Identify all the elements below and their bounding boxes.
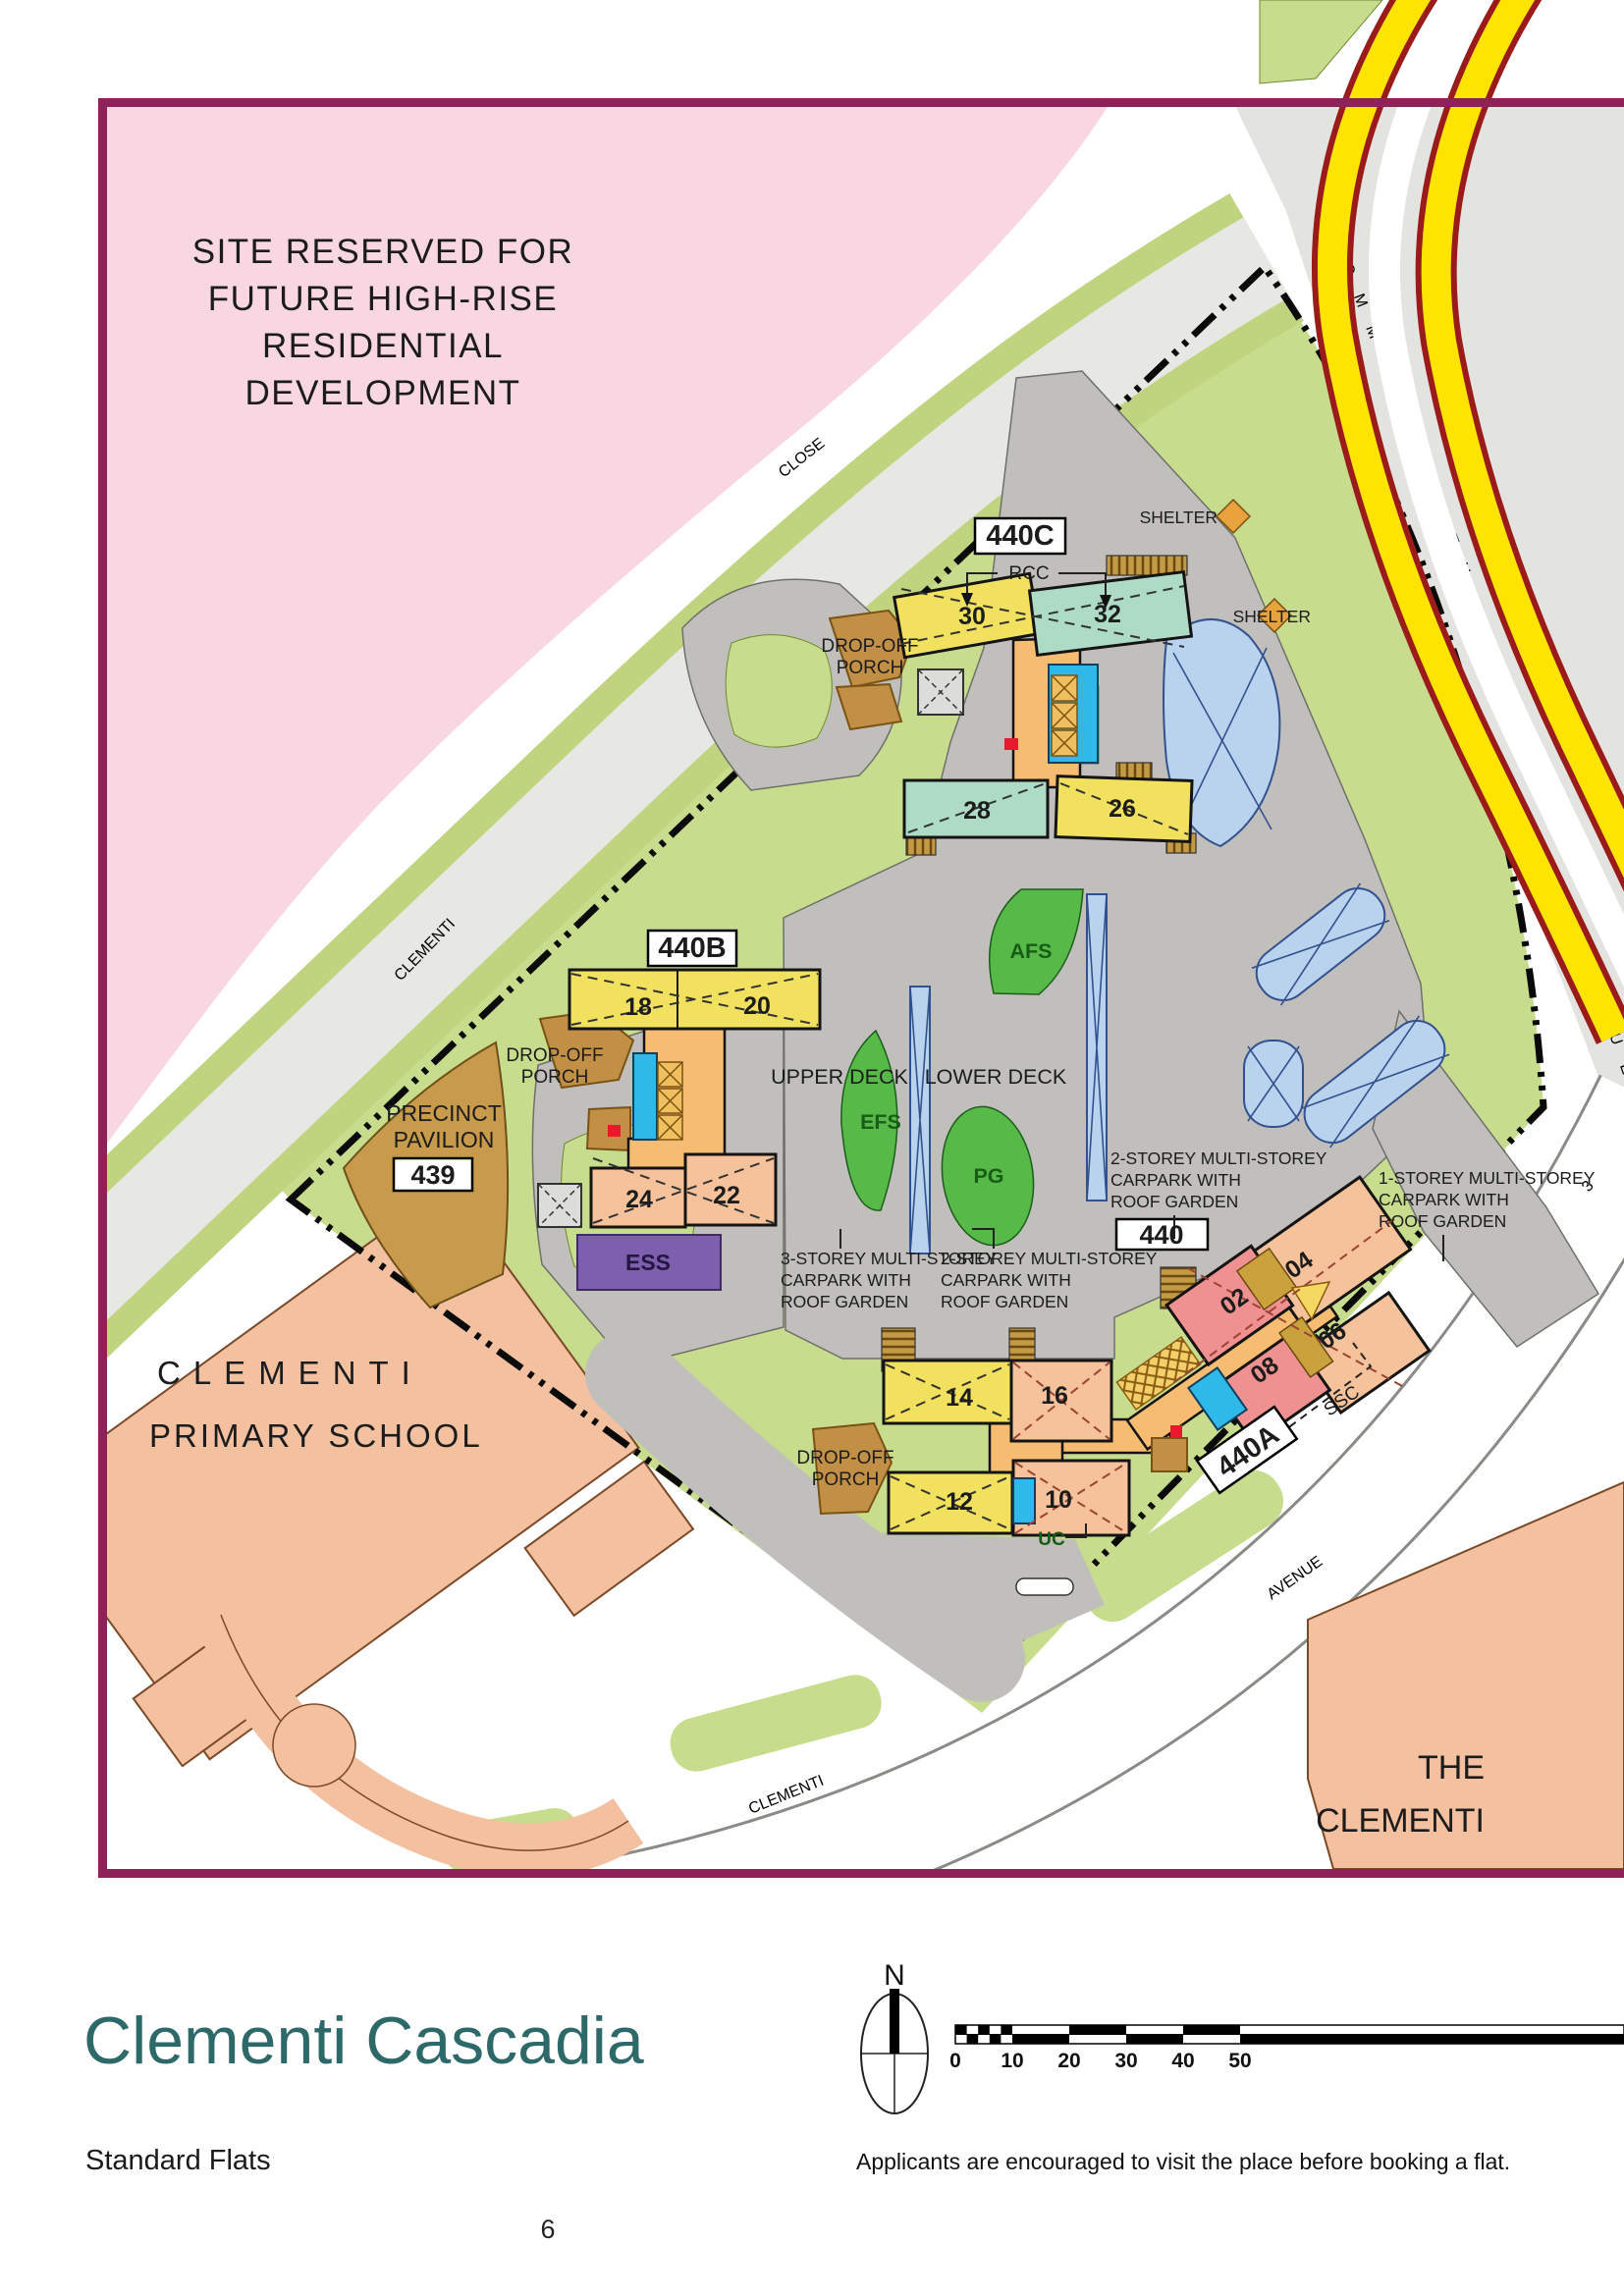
- pickup-oval: [1016, 1578, 1073, 1595]
- reserved-line3: RESIDENTIAL: [262, 327, 504, 365]
- cp2a-line1: 2-STOREY MULTI-STOREY: [941, 1249, 1158, 1268]
- page-number: 6: [540, 2215, 555, 2244]
- site-plan-map: SITE RESERVED FOR FUTURE HIGH-RISE RESID…: [0, 0, 1624, 2296]
- block-18-label: 18: [624, 993, 652, 1021]
- vent-shaft: [918, 669, 963, 715]
- lift-shafts: [658, 1062, 682, 1140]
- north-label: N: [884, 1959, 905, 1992]
- cp1-line3: ROOF GARDEN: [1379, 1211, 1506, 1231]
- red-marker: [608, 1125, 621, 1137]
- page-subtitle: Standard Flats: [85, 2145, 271, 2176]
- reserved-line2: FUTURE HIGH-RISE: [208, 280, 559, 318]
- cp3-line3: ROOF GARDEN: [781, 1292, 908, 1311]
- dropoff3-line1: DROP-OFF: [796, 1448, 893, 1468]
- legend-area: Clementi Cascadia Standard Flats Applica…: [83, 1959, 1624, 2244]
- cp2b-line1: 2-STOREY MULTI-STOREY: [1110, 1148, 1327, 1168]
- label-shelter1: SHELTER: [1140, 507, 1218, 527]
- dropoff1-line2: PORCH: [837, 658, 904, 678]
- scale-tick-20: 20: [1057, 2050, 1080, 2072]
- label-439: 439: [410, 1160, 455, 1190]
- north-needle: [890, 1989, 899, 2054]
- porch-440a-east: [1152, 1438, 1187, 1471]
- dropoff2-line1: DROP-OFF: [506, 1045, 603, 1066]
- reserved-line4: DEVELOPMENT: [245, 374, 521, 412]
- red-marker: [1170, 1425, 1182, 1437]
- school-line2: PRIMARY SCHOOL: [149, 1417, 483, 1454]
- scale-tick-40: 40: [1171, 2050, 1194, 2072]
- label-ess: ESS: [625, 1250, 671, 1275]
- neighbor-line2: CLEMENTI: [1316, 1802, 1485, 1840]
- block-12-label: 12: [946, 1488, 973, 1516]
- block-10-label: 10: [1045, 1486, 1072, 1514]
- block-26-label: 26: [1109, 795, 1136, 823]
- vent-shaft: [538, 1184, 581, 1227]
- lift-lobby: [1013, 1478, 1035, 1523]
- dropoff1-line1: DROP-OFF: [821, 636, 918, 657]
- label-afs: AFS: [1010, 939, 1053, 963]
- cp2b-line3: ROOF GARDEN: [1110, 1192, 1238, 1211]
- cp2a-line2: CARPARK WITH: [941, 1270, 1071, 1290]
- verge-patch: [665, 1669, 888, 1777]
- scale-tick-30: 30: [1114, 2050, 1137, 2072]
- scale-tick-0: 0: [949, 2050, 961, 2072]
- block-16-label: 16: [1041, 1382, 1068, 1410]
- stair: [906, 837, 936, 855]
- block-32-label: 32: [1094, 601, 1121, 628]
- page-title: Clementi Cascadia: [83, 2003, 644, 2078]
- block-28-label: 28: [963, 797, 991, 825]
- label-lower-deck: LOWER DECK: [925, 1065, 1067, 1089]
- school-line1: CLEMENTI: [157, 1355, 423, 1391]
- block-14-label: 14: [946, 1384, 973, 1412]
- green-island: [726, 635, 832, 747]
- pavilion-line1: PRECINCT: [386, 1100, 502, 1126]
- label-440b: 440B: [658, 933, 726, 964]
- red-marker: [1004, 738, 1018, 750]
- label-efs: EFS: [860, 1110, 901, 1134]
- label-rcc: RCC: [1008, 563, 1049, 584]
- brochure-page: SITE RESERVED FOR FUTURE HIGH-RISE RESID…: [0, 0, 1624, 2296]
- block-24-label: 24: [625, 1186, 653, 1213]
- cp1-line1: 1-STOREY MULTI-STOREY: [1379, 1168, 1596, 1188]
- block-20-label: 20: [743, 992, 771, 1020]
- scale-tick-10: 10: [1001, 2050, 1023, 2072]
- label-440: 440: [1139, 1220, 1183, 1250]
- cp2a-line3: ROOF GARDEN: [941, 1292, 1068, 1311]
- block-22-label: 22: [713, 1182, 740, 1209]
- neighbor-line1: THE: [1418, 1749, 1485, 1787]
- cp1-line2: CARPARK WITH: [1379, 1190, 1509, 1209]
- dropoff2-line2: PORCH: [521, 1067, 589, 1088]
- reserved-line1: SITE RESERVED FOR: [192, 233, 574, 271]
- block-30-label: 30: [958, 603, 986, 630]
- lift-lobby: [633, 1053, 657, 1140]
- lift-shafts: [1052, 675, 1077, 756]
- label-uc: UC: [1038, 1529, 1065, 1550]
- cp2b-line2: CARPARK WITH: [1110, 1170, 1241, 1190]
- label-440c: 440C: [986, 520, 1054, 552]
- cp3-line2: CARPARK WITH: [781, 1270, 911, 1290]
- dropoff3-line2: PORCH: [812, 1469, 880, 1490]
- visit-note: Applicants are encouraged to visit the p…: [856, 2149, 1510, 2174]
- north-arrow: N: [861, 1959, 928, 2113]
- label-upper-deck: UPPER DECK: [771, 1065, 908, 1089]
- scale-tick-50: 50: [1228, 2050, 1251, 2072]
- label-pg: PG: [973, 1164, 1003, 1188]
- scale-bar: 0 10 20 30 40 50: [949, 2025, 1624, 2072]
- pavilion-line2: PAVILION: [394, 1127, 495, 1152]
- label-shelter2: SHELTER: [1233, 607, 1311, 626]
